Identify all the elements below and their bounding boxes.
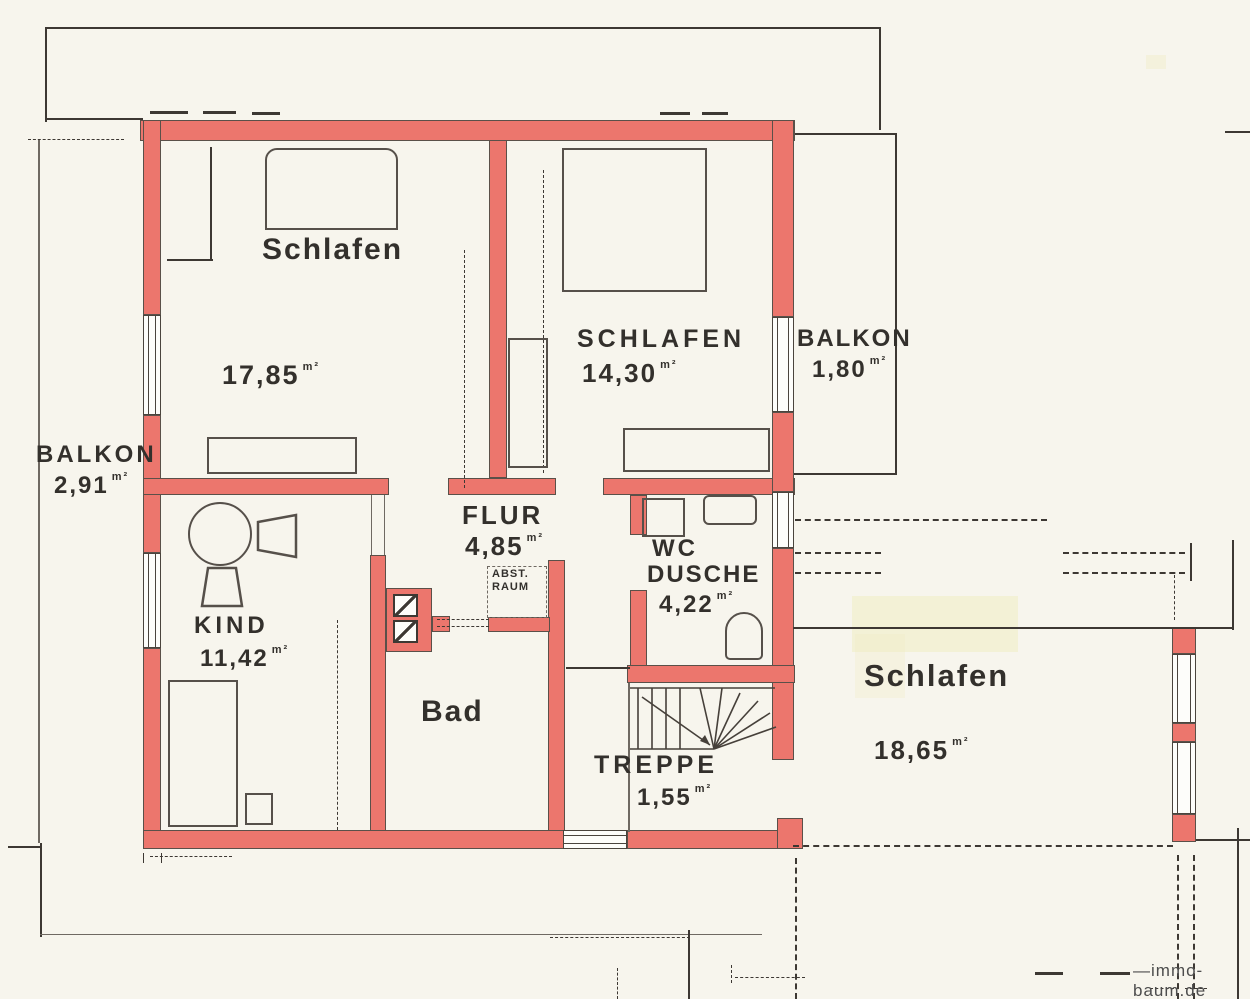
bed-icon bbox=[168, 680, 238, 827]
room-outline bbox=[566, 667, 630, 669]
watermark-dash bbox=[1035, 972, 1063, 975]
dashed-line bbox=[1063, 572, 1185, 574]
wall-segment bbox=[143, 648, 161, 849]
dimension-line bbox=[45, 27, 881, 29]
abst-line1: ABST. bbox=[492, 568, 529, 581]
window bbox=[772, 317, 794, 412]
area-value: 1,55 bbox=[637, 784, 692, 811]
chimney-icon bbox=[386, 588, 432, 652]
room-area-wc: 4,22m² bbox=[659, 591, 734, 619]
dimension-line bbox=[40, 843, 42, 937]
area-value: 14,30 bbox=[582, 358, 657, 388]
dimension-tick bbox=[161, 853, 162, 863]
door-jamb bbox=[384, 495, 385, 555]
area-value: 1,80 bbox=[812, 356, 867, 383]
dashed-line bbox=[735, 977, 805, 978]
chair-icon bbox=[200, 566, 244, 608]
room-outline bbox=[793, 627, 1234, 629]
dimension-line bbox=[45, 27, 47, 122]
dimension-line bbox=[8, 846, 42, 848]
wall-segment bbox=[1172, 628, 1196, 654]
window bbox=[143, 553, 161, 648]
hatch-mark bbox=[252, 112, 280, 115]
room-label-schlafen3: Schlafen bbox=[864, 658, 1009, 694]
hatch-mark bbox=[702, 112, 728, 115]
washbasin-icon bbox=[703, 495, 757, 525]
roof-slope-line bbox=[464, 250, 465, 488]
room-area-balkon-left: 2,91m² bbox=[54, 472, 129, 500]
area-unit: m² bbox=[112, 471, 129, 483]
abst-line2: RAUM bbox=[492, 581, 529, 594]
area-value: 11,42 bbox=[200, 645, 269, 672]
wall-segment bbox=[140, 120, 795, 141]
dashed-line bbox=[793, 845, 1173, 847]
table-icon bbox=[188, 502, 252, 566]
watermark-dash bbox=[1100, 972, 1130, 975]
roof-slope-line bbox=[337, 620, 338, 830]
area-value: 4,85 bbox=[465, 531, 524, 561]
chimney-flue bbox=[393, 620, 418, 643]
dimension-tick bbox=[143, 853, 144, 863]
balcony-outline-dash bbox=[28, 139, 124, 140]
wall-segment bbox=[1172, 814, 1196, 842]
window bbox=[772, 492, 794, 548]
room-area-kind: 11,42m² bbox=[200, 645, 289, 673]
room-area-schlafen1: 17,85m² bbox=[222, 360, 320, 391]
area-value: 18,65 bbox=[874, 735, 949, 765]
dashed-line bbox=[1063, 552, 1185, 554]
room-label-balkon-right: BALKON bbox=[797, 325, 912, 353]
chair-icon bbox=[256, 514, 298, 558]
balcony-outline bbox=[38, 140, 40, 843]
room-label-kind: KIND bbox=[194, 612, 269, 640]
sideboard-icon bbox=[623, 428, 770, 472]
room-outline bbox=[1232, 540, 1234, 630]
balcony-outline bbox=[895, 133, 897, 475]
room-outline bbox=[1196, 839, 1250, 841]
dimension-line bbox=[1225, 131, 1250, 133]
window bbox=[1172, 654, 1196, 723]
room-label-flur: FLUR bbox=[462, 500, 543, 531]
wall-segment bbox=[143, 830, 565, 849]
shower-icon bbox=[642, 498, 685, 537]
highlight bbox=[1146, 55, 1166, 69]
area-unit: m² bbox=[717, 590, 734, 602]
room-area-schlafen3: 18,65m² bbox=[874, 735, 970, 766]
wall-segment bbox=[370, 555, 386, 831]
dashed-line bbox=[795, 552, 881, 554]
room-label-schlafen1: Schlafen bbox=[262, 233, 403, 267]
bed-icon bbox=[265, 148, 398, 230]
area-value: 17,85 bbox=[222, 360, 300, 390]
balcony-outline bbox=[793, 473, 897, 475]
dimension-line bbox=[45, 118, 143, 120]
wall-segment bbox=[1172, 723, 1196, 742]
room-label-treppe: TREPPE bbox=[594, 751, 718, 780]
dimension-tick bbox=[1190, 543, 1192, 581]
wardrobe-icon bbox=[508, 338, 548, 468]
wall-segment bbox=[488, 617, 550, 632]
area-unit: m² bbox=[952, 736, 969, 748]
wall-segment bbox=[627, 665, 795, 683]
watermark-text: immo-baum.de bbox=[1133, 961, 1206, 999]
dimension-line bbox=[688, 930, 690, 999]
area-unit: m² bbox=[695, 783, 712, 795]
area-value: 2,91 bbox=[54, 472, 109, 499]
wall-segment bbox=[548, 560, 565, 831]
wall-segment bbox=[143, 120, 161, 315]
room-label-dusche: DUSCHE bbox=[647, 561, 760, 589]
sideboard-icon bbox=[207, 437, 357, 474]
area-unit: m² bbox=[660, 359, 677, 371]
balcony-outline bbox=[793, 133, 897, 135]
area-unit: m² bbox=[527, 532, 544, 544]
dashed-line bbox=[795, 572, 881, 574]
window bbox=[1172, 742, 1196, 814]
toilet-icon bbox=[725, 612, 763, 660]
wall-segment bbox=[603, 478, 795, 495]
room-label-wc: WC bbox=[652, 535, 698, 563]
wardrobe-icon bbox=[167, 259, 213, 261]
hatch-mark bbox=[660, 112, 690, 115]
wardrobe-icon bbox=[210, 147, 212, 261]
nightstand-icon bbox=[245, 793, 273, 825]
area-unit: m² bbox=[870, 355, 887, 367]
dimension-line bbox=[879, 27, 881, 130]
room-area-treppe: 1,55m² bbox=[637, 784, 712, 812]
chimney-flue bbox=[393, 594, 418, 617]
room-area-flur: 4,85m² bbox=[465, 531, 544, 562]
dashed-line bbox=[617, 968, 618, 999]
room-label-bad: Bad bbox=[421, 695, 484, 729]
room-label-abstellraum: ABST. RAUM bbox=[492, 568, 529, 594]
dashed-line bbox=[550, 937, 690, 938]
room-area-schlafen2: 14,30m² bbox=[582, 358, 678, 389]
area-value: 4,22 bbox=[659, 591, 714, 618]
dashed-line bbox=[795, 519, 1047, 521]
watermark: —immo-baum.de bbox=[1133, 961, 1250, 999]
window bbox=[143, 315, 161, 415]
door-jamb bbox=[371, 495, 372, 555]
door-opening-dash bbox=[437, 619, 489, 620]
door-opening-dash bbox=[437, 626, 489, 627]
floor-plan: Schlafen 17,85m² SCHLAFEN 14,30m² BALKON… bbox=[0, 0, 1250, 999]
room-label-balkon-left: BALKON bbox=[36, 441, 157, 469]
dimension-line bbox=[40, 934, 762, 935]
bed-icon bbox=[562, 148, 707, 292]
room-label-schlafen2: SCHLAFEN bbox=[577, 325, 745, 354]
window bbox=[563, 830, 627, 849]
dashed-line bbox=[1174, 575, 1175, 620]
room-area-balkon-right: 1,80m² bbox=[812, 356, 887, 384]
wall-segment bbox=[489, 140, 507, 478]
wall-segment bbox=[143, 478, 389, 495]
area-unit: m² bbox=[272, 644, 289, 656]
dashed-line bbox=[731, 965, 732, 983]
wall-segment bbox=[772, 412, 794, 492]
wall-segment bbox=[772, 120, 794, 317]
dashed-line bbox=[150, 856, 232, 857]
area-unit: m² bbox=[303, 361, 320, 373]
hatch-mark bbox=[150, 111, 188, 114]
hatch-mark bbox=[203, 111, 236, 114]
